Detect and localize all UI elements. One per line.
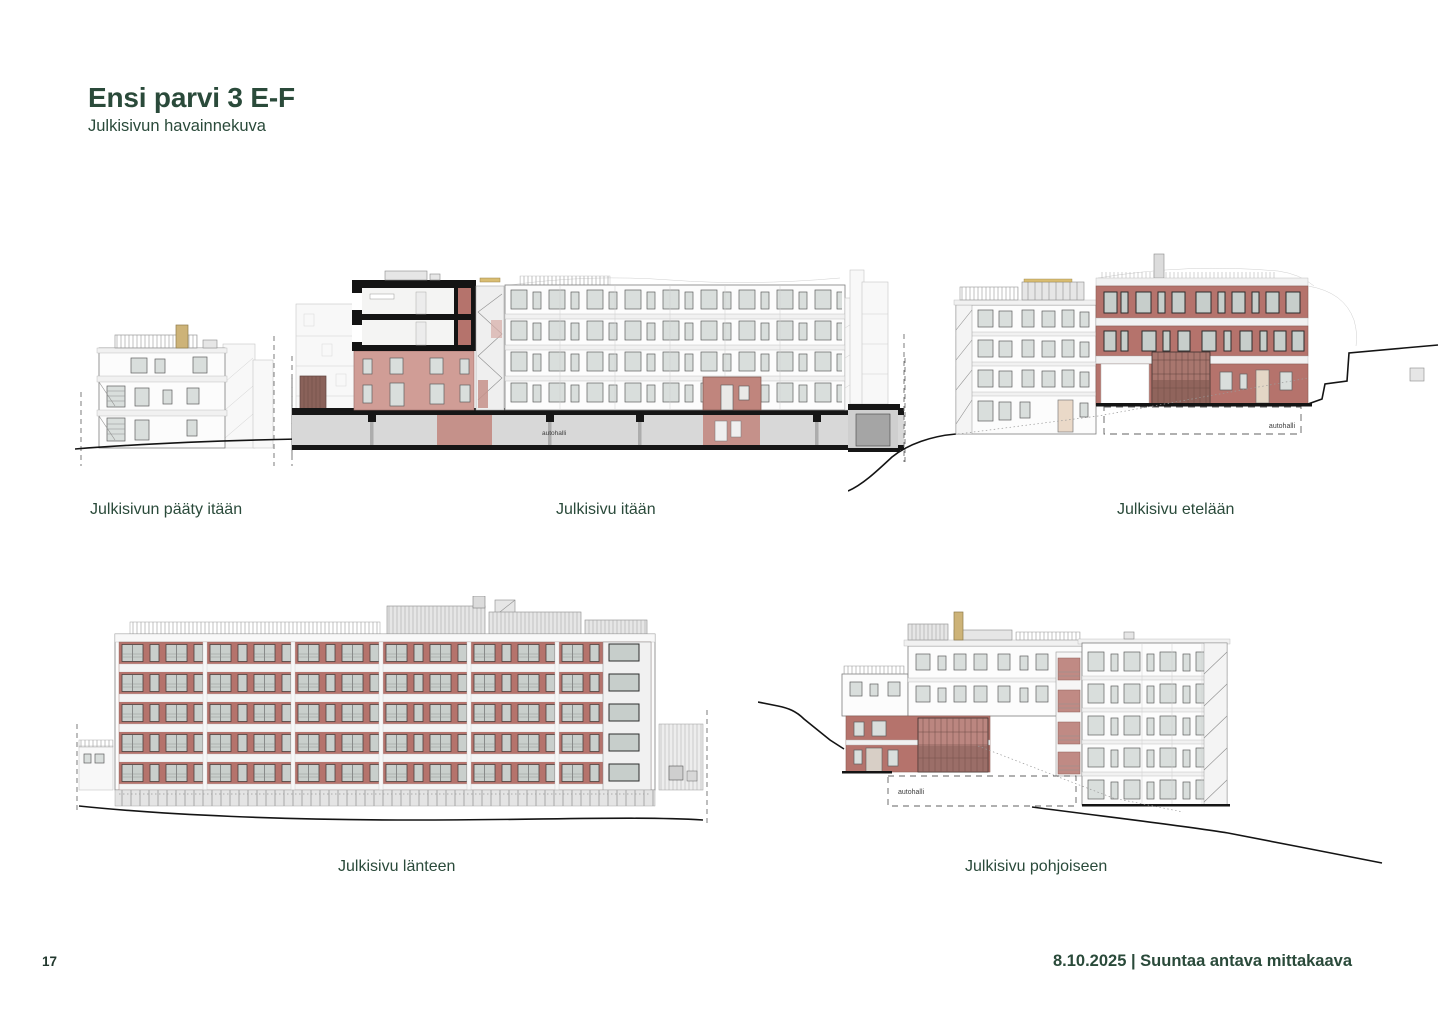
passage-opening: [1101, 364, 1149, 405]
autohalli-label-east: autohalli: [542, 430, 566, 437]
page-title: Ensi parvi 3 E-F: [88, 82, 295, 114]
caption-south: Julkisivu etelään: [1117, 501, 1234, 519]
elevation-drawing-north: autohalli: [758, 596, 1386, 868]
elevation-drawing-east-end: [75, 298, 300, 470]
document-page: Ensi parvi 3 E-F Julkisivun havainnekuva: [0, 0, 1440, 1018]
caption-east-end: Julkisivun pääty itään: [90, 501, 242, 519]
section-cut: [352, 280, 476, 351]
chimney: [954, 612, 963, 640]
glass-curtain-wall: [1152, 352, 1210, 405]
footer-date-scale: 8.10.2025 | Suuntaa antava mittakaava: [1053, 952, 1352, 971]
terrain-line-right: [1032, 807, 1382, 863]
autohalli-label-south: autohalli: [1269, 423, 1296, 430]
glass-curtain-wall: [918, 718, 988, 772]
ground-line: [79, 806, 703, 820]
page-number: 17: [42, 954, 57, 969]
garage-hall: [292, 415, 904, 445]
terrain-line-left: [758, 702, 844, 749]
elevation-drawing-south: autohalli: [848, 248, 1440, 500]
entry-door: [1058, 400, 1073, 432]
caption-north: Julkisivu pohjoiseen: [965, 858, 1107, 876]
chimney: [176, 325, 188, 348]
page-subtitle: Julkisivun havainnekuva: [88, 117, 266, 136]
elevation-drawing-west: [75, 596, 715, 836]
autohalli-label-north: autohalli: [898, 789, 925, 796]
caption-east: Julkisivu itään: [556, 501, 656, 519]
elevation-drawing-east: autohalli: [290, 258, 908, 465]
brick-facade: [119, 642, 651, 790]
caption-west: Julkisivu länteen: [338, 858, 455, 876]
